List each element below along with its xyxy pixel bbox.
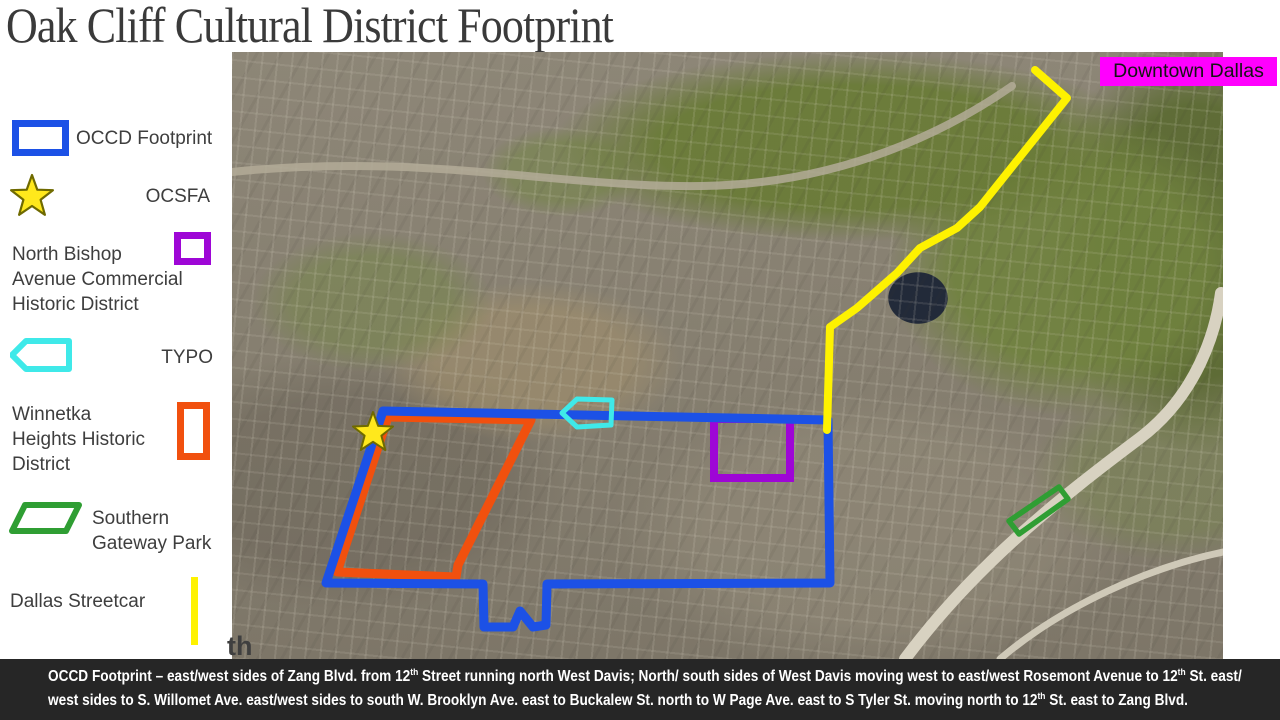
rail-corridor: [232, 86, 1012, 186]
north-bishop-outline: [714, 419, 790, 478]
secondary-road: [1000, 552, 1223, 659]
slide: Oak Cliff Cultural District Footprint Do…: [0, 0, 1280, 720]
page-title: Oak Cliff Cultural District Footprint: [6, 0, 613, 54]
legend-label-winnetka-heights: Winnetka Heights Historic District: [12, 402, 177, 477]
legend-label-ocsfa: OCSFA: [120, 184, 210, 209]
highway-road: [905, 293, 1221, 659]
legend-swatch-winnetka-heights: [177, 402, 210, 460]
legend-star-icon: [8, 172, 58, 222]
legend-label-north-bishop: North Bishop Avenue Commercial Historic …: [12, 242, 197, 317]
legend-label-dallas-streetcar: Dallas Streetcar: [10, 589, 180, 614]
caption-bar: OCCD Footprint – east/west sides of Zang…: [0, 659, 1280, 720]
map-overlay-shapes: [232, 52, 1223, 659]
satellite-map: [232, 52, 1223, 659]
occd-footprint-outline: [326, 411, 830, 627]
caption-line-1: OCCD Footprint – east/west sides of Zang…: [48, 667, 1242, 686]
legend-swatch-north-bishop: [174, 232, 211, 265]
caption-line-2: west sides to S. Willomet Ave. east/west…: [48, 691, 1188, 710]
legend-swatch-occd-footprint: [12, 120, 69, 156]
legend-label-typo: TYPO: [140, 345, 213, 370]
map-corner-text-fragment: th: [227, 633, 252, 660]
downtown-dallas-label: Downtown Dallas: [1100, 57, 1277, 86]
legend-label-occd-footprint: OCCD Footprint: [76, 126, 212, 151]
legend-label-southern-gateway: Southern Gateway Park: [92, 506, 222, 556]
legend-parallelogram-icon: [9, 502, 91, 534]
legend-swatch-dallas-streetcar: [191, 577, 198, 645]
legend-left-arrow-icon: [10, 338, 74, 374]
